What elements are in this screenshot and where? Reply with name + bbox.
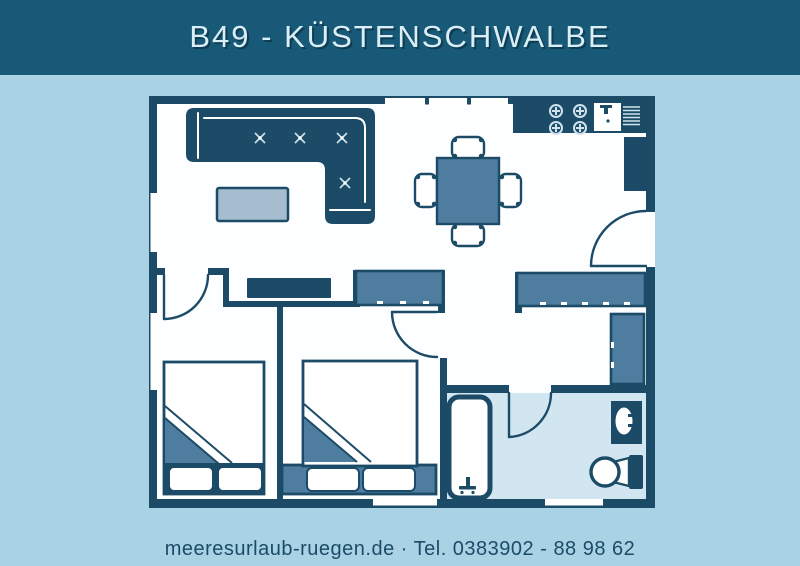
footer-contact-text: meeresurlaub-ruegen.de · Tel. 0383902 - … <box>165 538 636 560</box>
washbasin-tap <box>628 414 636 417</box>
bedroom-1 <box>164 362 264 494</box>
floorplan-image: B49 - KÜSTENSCHWALBE B49 - KÜSTENSCHWALB… <box>0 0 800 566</box>
toilet <box>591 455 643 489</box>
wall-bathroom-top <box>551 385 647 393</box>
wall-segment <box>223 301 360 307</box>
kitchen-sink-icon <box>594 103 621 131</box>
window-bedroom2-bottom <box>373 499 437 506</box>
pillow <box>363 468 415 491</box>
entrance-door-opening <box>646 212 655 267</box>
bathtub <box>449 397 490 498</box>
wall-bathroom-left <box>440 358 447 500</box>
header-bar: B49 - KÜSTENSCHWALBE B49 - KÜSTENSCHWALB… <box>0 0 800 75</box>
washbasin-tap <box>628 424 636 427</box>
bedroom-wardrobe <box>356 271 443 305</box>
window-bathroom-bottom <box>545 499 603 506</box>
wall-segment <box>149 268 165 275</box>
wall-bathroom-top <box>447 385 509 393</box>
window-mullion <box>425 96 429 105</box>
sideboard <box>247 278 331 298</box>
wall-right <box>646 96 655 508</box>
page-title: B49 - KÜSTENSCHWALBE <box>189 19 610 54</box>
double-bed-2 <box>282 361 436 494</box>
refrigerator <box>624 137 646 191</box>
washbasin <box>611 401 642 444</box>
wall-segment <box>223 275 229 303</box>
page: B49 - KÜSTENSCHWALBE B49 - KÜSTENSCHWALB… <box>0 0 800 566</box>
bedroom2-wardrobe-group <box>356 271 443 305</box>
window-bedroom1-left <box>151 313 158 390</box>
pillow <box>218 467 262 491</box>
floorplan <box>149 96 655 508</box>
double-bed-1 <box>164 362 264 494</box>
wall-left <box>149 96 157 508</box>
dining-table <box>437 158 499 224</box>
toilet-cistern <box>629 455 643 489</box>
hall-wardrobe <box>517 273 645 306</box>
window-mullion <box>467 96 471 105</box>
toilet-bowl <box>591 458 619 486</box>
coffee-table <box>217 188 288 221</box>
bedroom-2 <box>282 361 436 494</box>
hall-cabinet <box>611 314 644 384</box>
pillow <box>307 468 359 491</box>
window-living-left <box>151 193 158 252</box>
pillow <box>169 467 213 491</box>
wall-segment <box>208 268 229 275</box>
washbasin-bowl <box>616 408 633 435</box>
